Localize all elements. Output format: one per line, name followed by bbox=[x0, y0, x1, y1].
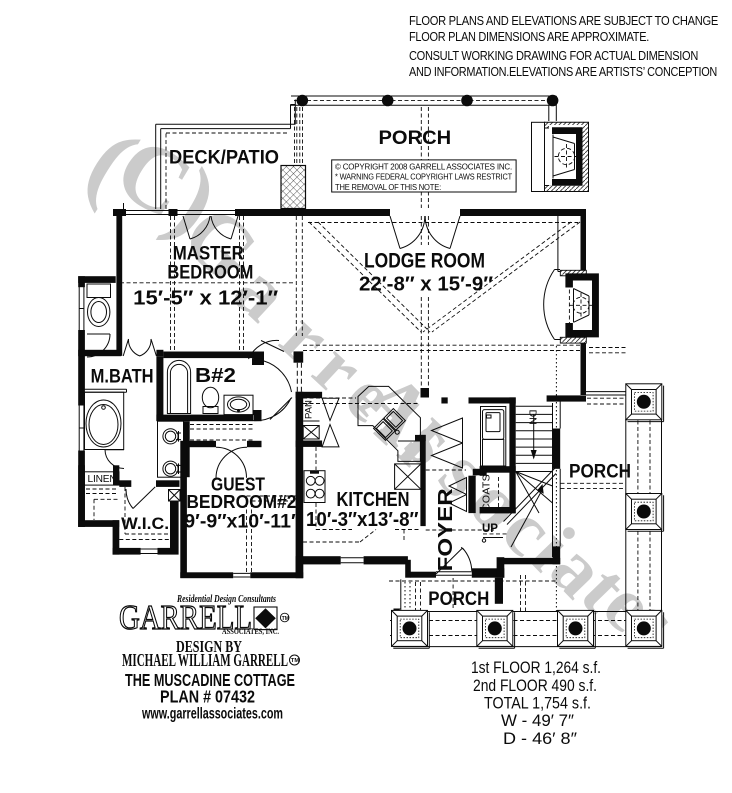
svg-text:LODGE ROOM: LODGE ROOM bbox=[364, 250, 485, 273]
svg-text:10′-3″x13′-8″: 10′-3″x13′-8″ bbox=[306, 509, 419, 531]
svg-text:KITCHEN: KITCHEN bbox=[337, 489, 410, 511]
svg-text:W - 49′ 7″: W - 49′ 7″ bbox=[501, 712, 574, 730]
svg-text:2nd FLOOR 490 s.f.: 2nd FLOOR 490 s.f. bbox=[473, 677, 597, 695]
svg-text:FLOOR PLANS AND ELEVATIONS ARE: FLOOR PLANS AND ELEVATIONS ARE SUBJECT T… bbox=[409, 13, 718, 28]
svg-text:UP: UP bbox=[482, 523, 498, 535]
svg-text:22′-8″ x 15′-9″: 22′-8″ x 15′-9″ bbox=[359, 274, 493, 296]
svg-text:PORCH: PORCH bbox=[569, 461, 631, 483]
svg-text:TM: TM bbox=[282, 616, 290, 622]
svg-text:CONSULT WORKING DRAWING FOR AC: CONSULT WORKING DRAWING FOR ACTUAL DIMEN… bbox=[409, 48, 698, 63]
svg-text:BEDROOM: BEDROOM bbox=[167, 263, 253, 284]
svg-text:PLAN # 07432: PLAN # 07432 bbox=[160, 687, 255, 707]
svg-text:www.garrellassociates.com: www.garrellassociates.com bbox=[141, 706, 283, 723]
svg-text:MASTER: MASTER bbox=[173, 244, 244, 265]
svg-text:M.BATH: M.BATH bbox=[91, 367, 154, 388]
svg-text:LINEN: LINEN bbox=[88, 474, 117, 485]
svg-text:B#2: B#2 bbox=[195, 365, 236, 387]
svg-text:COATS: COATS bbox=[481, 474, 493, 511]
svg-text:BEDROOM#2: BEDROOM#2 bbox=[186, 492, 296, 512]
svg-text:DECK/PATIO: DECK/PATIO bbox=[169, 147, 279, 169]
svg-text:W.I.C.: W.I.C. bbox=[121, 514, 169, 533]
svg-text:© COPYRIGHT 2008 GARRELL A: © COPYRIGHT 2008 GARRELL ASSOCIATES INC. bbox=[335, 161, 512, 171]
svg-text:PORCH: PORCH bbox=[428, 588, 489, 610]
svg-text:ASSOCIATES, INC.: ASSOCIATES, INC. bbox=[222, 626, 279, 636]
svg-text:AND INFORMATION.ELEVATIONS ARE: AND INFORMATION.ELEVATIONS ARE ARTISTS’ … bbox=[409, 64, 717, 79]
svg-text:TM: TM bbox=[291, 658, 300, 664]
svg-text:* WARNING FEDERAL COPYRIGHT: * WARNING FEDERAL COPYRIGHT LAWS RESTRIC… bbox=[335, 172, 513, 182]
svg-text:1st FLOOR 1,264 s.f.: 1st FLOOR 1,264 s.f. bbox=[471, 659, 601, 677]
svg-text:PAN: PAN bbox=[304, 400, 315, 419]
svg-text:PORCH: PORCH bbox=[379, 127, 452, 149]
svg-text:DN: DN bbox=[527, 410, 539, 425]
svg-text:15′-5″ x 12′-1″: 15′-5″ x 12′-1″ bbox=[133, 288, 278, 310]
svg-text:9′-9″x10′-11″: 9′-9″x10′-11″ bbox=[184, 512, 300, 533]
svg-text:THE REMOVAL OF THIS NOTE:: THE REMOVAL OF THIS NOTE: bbox=[335, 182, 441, 192]
svg-text:MICHAEL WILLIAM GARRELL: MICHAEL WILLIAM GARRELL bbox=[122, 650, 288, 670]
svg-text:FLOOR PLAN DIMENSIONS ARE APPR: FLOOR PLAN DIMENSIONS ARE APPROXIMATE. bbox=[409, 29, 649, 44]
svg-text:D - 46′ 8″: D - 46′ 8″ bbox=[503, 730, 577, 748]
svg-text:TOTAL 1,754 s.f.: TOTAL 1,754 s.f. bbox=[484, 695, 591, 713]
